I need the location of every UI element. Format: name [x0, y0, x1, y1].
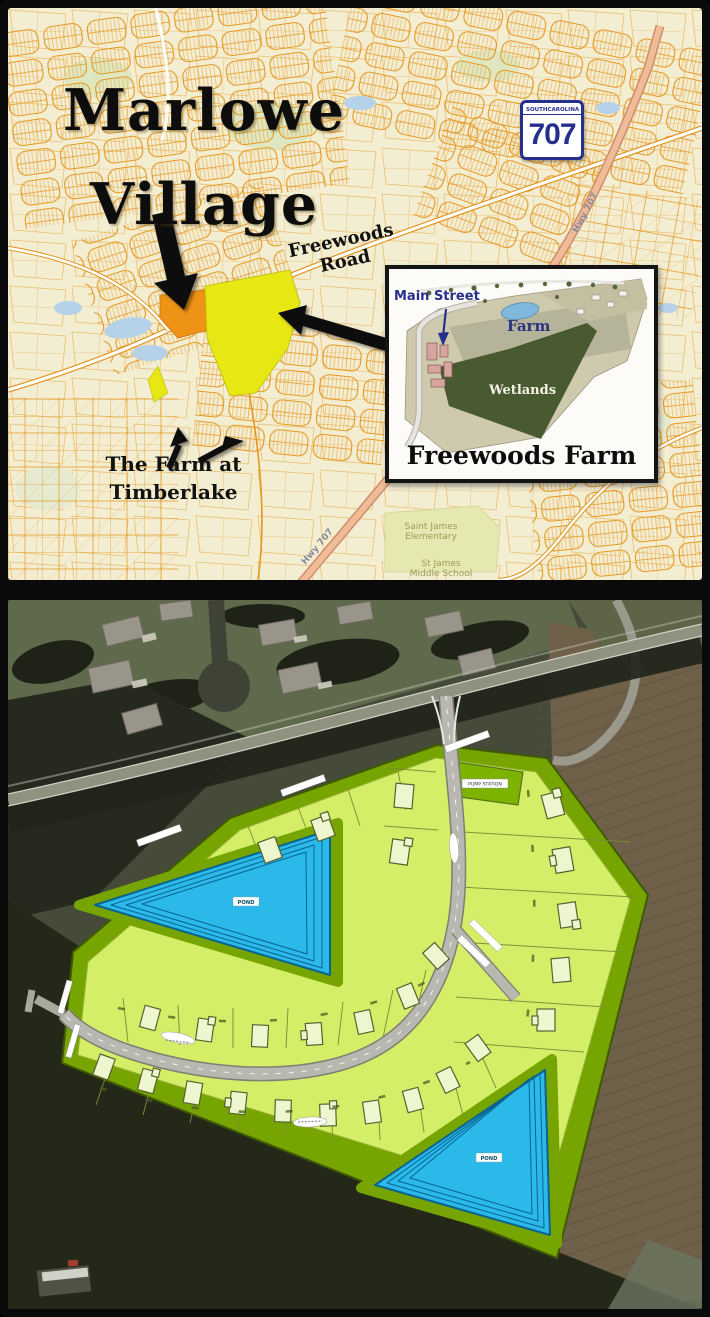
shield-south-text: SOUTH: [526, 107, 547, 113]
upper-pond-label: POND: [238, 900, 256, 906]
timberlake-line2: Timberlake: [66, 478, 281, 506]
location-map-panel: Marlowe Village Freewoods Road SOUTH CAR…: [8, 8, 702, 580]
farm-plan-art: [405, 279, 647, 453]
school-mid-line2: Middle School: [386, 569, 496, 579]
school-elementary-label: Saint James Elementary: [376, 522, 486, 542]
freewoods-farm-title: Freewoods Farm: [389, 441, 654, 470]
school-mid-line1: St James: [386, 559, 496, 569]
page-title-line1: Marlowe: [28, 64, 380, 158]
freewoods-farm-inset: Main Street Farm Wetlands Freewoods Farm: [385, 265, 658, 483]
school-elem-line2: Elementary: [376, 532, 486, 542]
farm-label: Farm: [507, 317, 550, 335]
shield-carolina-text: CAROLINA: [547, 107, 579, 113]
aerial-site-plan-graphic: PUMP STATION: [8, 600, 702, 1309]
shield-route-number: 707: [523, 115, 581, 155]
timberlake-label: The Farm at Timberlake: [66, 450, 281, 506]
timberlake-line1: The Farm at: [66, 450, 281, 478]
wetlands-label: Wetlands: [489, 383, 556, 398]
lower-pond-label: POND: [481, 1156, 499, 1162]
pump-station-label: PUMP STATION: [468, 782, 502, 788]
main-street-label: Main Street: [394, 289, 480, 304]
school-middle-label: St James Middle School: [386, 559, 496, 579]
page-title: Marlowe Village: [28, 64, 380, 252]
flyer-page: Marlowe Village Freewoods Road SOUTH CAR…: [0, 0, 710, 1317]
shield-state-row: SOUTH CAROLINA: [523, 103, 581, 115]
aerial-site-plan-panel: PUMP STATION: [8, 600, 702, 1309]
school-elem-line1: Saint James: [376, 522, 486, 532]
route-707-shield: SOUTH CAROLINA 707: [520, 100, 584, 160]
